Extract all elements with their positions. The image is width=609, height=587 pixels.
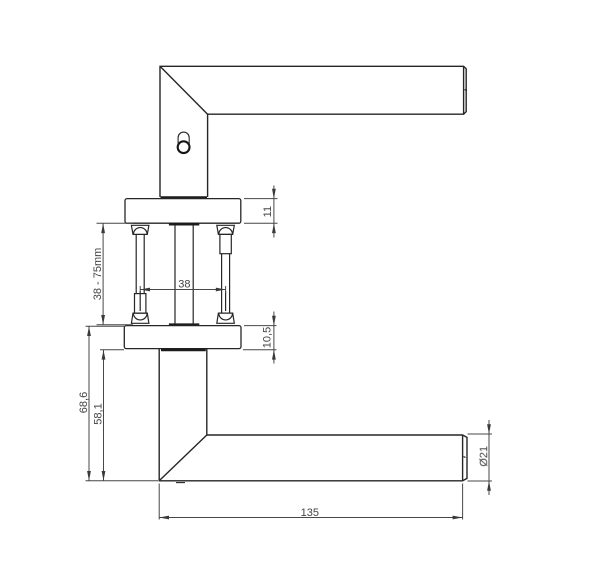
svg-text:11: 11: [262, 206, 274, 217]
svg-text:38 - 75mm: 38 - 75mm: [92, 248, 104, 301]
svg-text:Ø21: Ø21: [478, 446, 490, 467]
svg-text:58,1: 58,1: [92, 403, 104, 424]
svg-text:68,6: 68,6: [78, 392, 90, 413]
svg-text:135: 135: [301, 507, 319, 519]
svg-text:38: 38: [178, 278, 190, 290]
svg-text:10,5: 10,5: [262, 327, 274, 348]
